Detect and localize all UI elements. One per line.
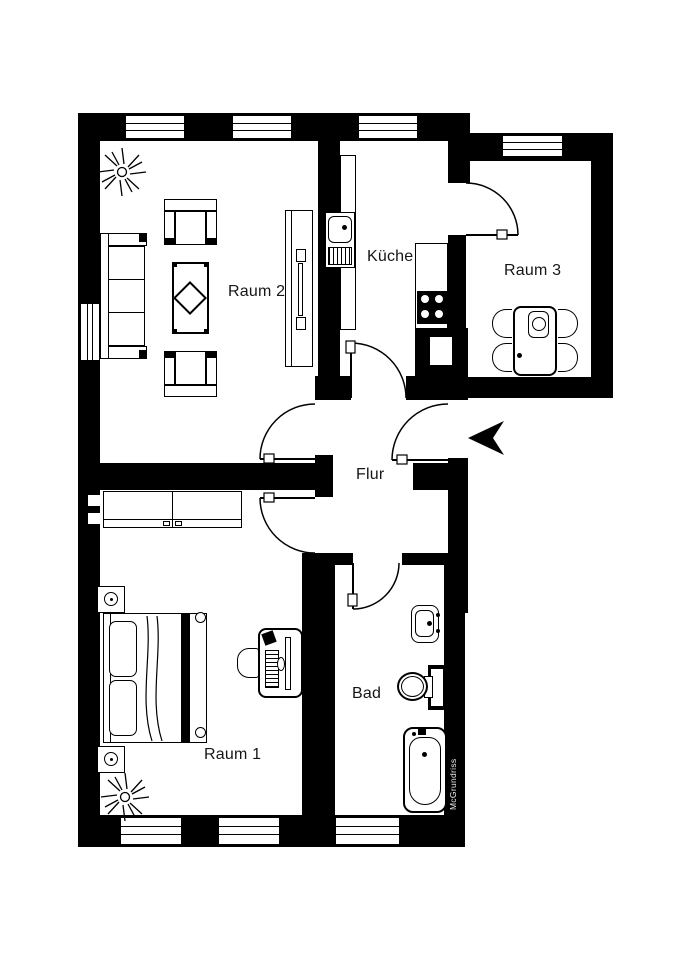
door-arc-kueche: [351, 343, 406, 398]
door-arc-entrance: [392, 404, 448, 460]
plant-icon: [101, 773, 149, 821]
stove-burner: [420, 294, 430, 304]
lamp-dot: [110, 758, 113, 761]
tap-dot: [436, 629, 440, 633]
door-stub: [397, 455, 407, 464]
room-label-raum3: Raum 3: [504, 262, 561, 280]
door-stub: [264, 493, 274, 502]
window-raum2-side: [80, 303, 100, 361]
wardrobe-handle: [163, 521, 170, 526]
window-bad: [335, 817, 400, 845]
shelf-unit-handle: [296, 317, 306, 330]
floor-plan: Raum 2 Küche Raum 3 Flur Raum 1 Bad McGr…: [0, 0, 679, 960]
room-label-kueche: Küche: [367, 248, 413, 266]
wall-right-raum3: [591, 161, 613, 398]
table-corner-dot: [173, 263, 177, 267]
door-stub: [497, 230, 507, 239]
door-stub: [346, 341, 355, 353]
drain-dot: [422, 752, 427, 757]
stove-burner: [434, 309, 444, 319]
dining-chair: [492, 309, 512, 338]
wall-raum1-bad: [302, 553, 335, 815]
sofa-foot: [139, 350, 147, 359]
wall-kitchen-bottom-left: [315, 376, 351, 400]
bed-post: [195, 612, 206, 623]
sink-drainer: [328, 247, 352, 265]
faucet-icon: [342, 225, 347, 230]
wall-raum2-raum1: [78, 463, 315, 490]
armchair-foot: [206, 238, 217, 245]
wall-raum3-bottom: [448, 377, 613, 398]
window-kueche: [358, 115, 418, 139]
window-raum2-1: [125, 115, 185, 139]
shelf-unit-handle: [296, 249, 306, 262]
dining-chair: [492, 343, 512, 372]
table-corner-dot: [204, 263, 208, 267]
sofa-cushion-line: [108, 312, 145, 313]
wall-flur-west-column: [315, 455, 333, 497]
dining-chair: [558, 309, 578, 338]
wardrobe-handle: [175, 521, 182, 526]
pillow: [109, 680, 137, 736]
chimney-notch: [88, 495, 100, 506]
pillow: [109, 621, 137, 677]
door-arc-raum1: [260, 498, 315, 553]
entrance-arrow-icon: [468, 421, 504, 455]
armchair-foot: [164, 238, 175, 245]
armchair-back: [164, 385, 217, 397]
table-decor-dot: [517, 353, 522, 358]
chimney-notch: [88, 513, 100, 524]
tap-dot: [412, 732, 416, 736]
door-stub: [348, 594, 357, 606]
stove-burner: [434, 294, 444, 304]
table-corner-dot: [204, 329, 208, 333]
dining-chair: [558, 343, 578, 372]
kitchen-shaft: [430, 337, 452, 365]
window-raum2-2: [232, 115, 292, 139]
door-stub: [264, 454, 274, 463]
door-arc-raum3: [466, 183, 518, 235]
wardrobe-front-line: [104, 519, 241, 520]
stove-burner: [420, 309, 430, 319]
desk-chair: [237, 648, 259, 678]
sofa-seat: [108, 246, 145, 346]
wall-bad-north-right: [402, 553, 448, 565]
wall-kitchen-raum3-upper: [448, 141, 470, 183]
lamp-dot: [110, 598, 113, 601]
room-label-raum1: Raum 1: [204, 746, 261, 764]
room-label-bad: Bad: [352, 685, 381, 703]
monitor-icon: [285, 637, 291, 690]
watermark-text: McGrundriss: [448, 746, 463, 810]
bed-post: [195, 727, 206, 738]
room-label-flur: Flur: [356, 466, 384, 484]
window-raum3: [502, 135, 563, 157]
window-raum1-1: [120, 817, 182, 845]
plant-icon: [98, 148, 146, 196]
armchair-back: [164, 199, 217, 211]
armchair-foot: [206, 351, 217, 358]
armchair-seat: [175, 351, 206, 385]
sofa-cushion-line: [108, 279, 145, 280]
wall-kitchen-bottom-right: [406, 376, 468, 400]
bathtub-basin: [409, 737, 441, 805]
door-arc-raum2: [260, 404, 315, 459]
plate-icon: [532, 317, 546, 331]
shelf-unit-bar: [298, 263, 303, 316]
sofa-foot: [139, 233, 147, 242]
wardrobe-divider: [172, 491, 173, 528]
table-corner-dot: [173, 329, 177, 333]
window-raum1-2: [218, 817, 280, 845]
faucet-icon: [427, 621, 432, 626]
room-label-raum2: Raum 2: [228, 283, 285, 301]
keyboard-icon: [265, 650, 279, 688]
blanket-stripe: [181, 614, 190, 742]
bathtub-tap: [418, 729, 426, 735]
shelf-unit-edge: [291, 210, 292, 367]
tap-dot: [436, 613, 440, 617]
mouse-icon: [277, 657, 285, 671]
door-arc-bad: [353, 563, 399, 609]
armchair-seat: [175, 211, 206, 245]
armchair-foot: [164, 351, 175, 358]
wall-bad-north-left: [335, 553, 353, 565]
sink-basin: [328, 216, 352, 243]
toilet-bowl: [401, 676, 424, 697]
